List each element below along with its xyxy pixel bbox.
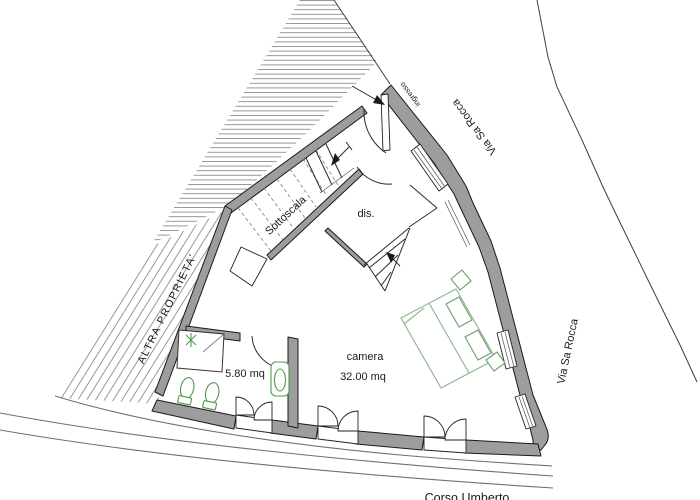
bottom-wall-seg1	[152, 400, 236, 429]
parcel-boundary-line	[537, 0, 697, 382]
bathroom-area-label: 5.80 mq	[225, 368, 265, 380]
hallway-label: dis.	[357, 208, 374, 220]
bedroom-label: camera	[347, 351, 385, 363]
street-label-via-sa-rocca-top: Via Sa Rocca	[449, 96, 499, 157]
bottom-wall-seg3	[356, 431, 424, 450]
hall-wall-ne	[410, 185, 437, 208]
hatch-lower	[57, 209, 228, 404]
bidet	[178, 376, 196, 405]
double-door-camera-1	[318, 406, 358, 444]
toilet	[203, 381, 221, 410]
hall-wall-e	[409, 208, 437, 227]
floor-plan-page: ALTRA PROPRIETA' Via Sa Rocca Via Sa Roc…	[0, 0, 700, 500]
bottom-doors	[236, 397, 466, 453]
nightstand	[451, 270, 471, 290]
stair-direction-arrow	[386, 252, 395, 263]
hall-door-arc	[357, 167, 392, 184]
shower	[177, 330, 224, 372]
double-door-camera-2	[424, 416, 466, 453]
hallway-dis	[325, 167, 437, 267]
entrance-arrow-icon	[352, 86, 385, 105]
street-label-corso-umberto: Corso Umberto	[425, 491, 510, 500]
curb-line-3	[0, 430, 553, 488]
street-label-via-sa-rocca-right: Via Sa Rocca	[555, 317, 581, 385]
sink	[271, 362, 289, 396]
bed	[401, 270, 505, 388]
bedroom-area-label: 32.00 mq	[340, 371, 386, 383]
understairs-closet	[230, 247, 267, 286]
bottom-wall-seg4	[464, 440, 541, 456]
double-door-bathroom	[236, 397, 272, 433]
floor-plan-drawing: ALTRA PROPRIETA' Via Sa Rocca Via Sa Roc…	[0, 0, 700, 500]
hall-stair-wall	[325, 228, 367, 267]
stairs-lower-flight	[364, 228, 410, 291]
